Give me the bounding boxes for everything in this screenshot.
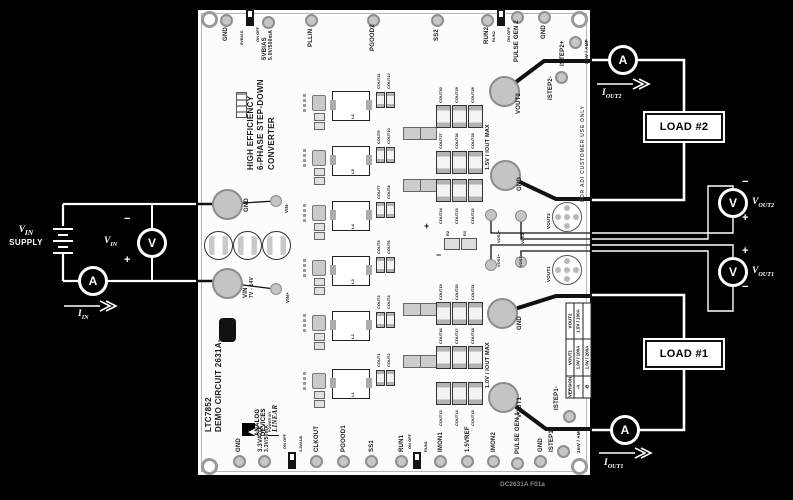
phase-cap bbox=[376, 370, 385, 386]
turret-gnd-label: GND bbox=[223, 27, 230, 41]
phase-vias bbox=[303, 372, 306, 375]
output-cap-label: COUT14 bbox=[455, 410, 460, 426]
inductor-label: L1 bbox=[351, 392, 356, 397]
mount-hole bbox=[571, 11, 588, 28]
turret-imon1 bbox=[434, 455, 447, 468]
5vbias-switch-label: 5VBIAS bbox=[240, 31, 245, 45]
vin-minus-sign: − bbox=[124, 213, 130, 225]
turret-pgood1-label: PGOOD1 bbox=[341, 425, 348, 452]
ammeter-letter: A bbox=[619, 53, 628, 67]
vout2-minus-sign: − bbox=[742, 176, 748, 188]
output-cap bbox=[468, 302, 483, 325]
phase-driver-ic bbox=[312, 373, 326, 389]
table-header: VOUT2 bbox=[566, 303, 574, 339]
vos2-minus-pad bbox=[515, 210, 527, 222]
istep2-minus-label: ISTEP2- bbox=[548, 76, 555, 100]
out2-gnd-label: GND bbox=[517, 177, 524, 191]
vos1-minus-label: VOS1- bbox=[519, 255, 524, 267]
turret-run2 bbox=[481, 14, 494, 27]
output-cap bbox=[452, 302, 467, 325]
phase-cap bbox=[376, 92, 385, 108]
turret-1v5ref-label: 1.5VREF bbox=[465, 426, 472, 452]
phase-vias bbox=[303, 259, 306, 262]
vin-minus-pad bbox=[270, 195, 282, 207]
load1-box: LOAD #1 bbox=[645, 340, 723, 368]
run1-switch bbox=[413, 452, 421, 469]
turret-pgood2-label: PGOOD2 bbox=[370, 24, 377, 51]
test-setup-figure: VIN SUPPLY V − + VIN A IIN A IOUT2 LOAD … bbox=[0, 0, 793, 500]
mount-hole bbox=[201, 11, 218, 28]
table-cell: 1.5V / 100A bbox=[574, 303, 582, 339]
inductor-label: L6 bbox=[351, 114, 356, 119]
vout2-jack-label: VOUT2 bbox=[546, 213, 551, 229]
output-cap-label: COUT23 bbox=[455, 208, 460, 224]
sense-plus-mark: + bbox=[424, 221, 429, 231]
phase-vias bbox=[303, 314, 306, 317]
run1-onoff-label: ON OFF bbox=[408, 434, 413, 449]
output-cap bbox=[468, 382, 483, 405]
output-cap-label: COUT25 bbox=[471, 133, 476, 149]
phase-cap-label: COUT8 bbox=[387, 185, 392, 199]
turret-istep1-plus bbox=[557, 445, 570, 458]
resistor-bar bbox=[403, 179, 437, 192]
vout1-plus-sign: + bbox=[742, 245, 748, 257]
input-bulk-cap bbox=[262, 231, 291, 260]
phase-cap-label: COUT11 bbox=[377, 73, 382, 89]
output-cap bbox=[468, 105, 483, 128]
5vbias-switch bbox=[246, 9, 254, 26]
phase-cap-label: COUT12 bbox=[387, 73, 392, 89]
phase-fet bbox=[314, 400, 325, 408]
turret-gnd2-bottom bbox=[534, 455, 547, 468]
sense-resistor bbox=[461, 238, 477, 250]
output-cap bbox=[436, 179, 451, 202]
phase-cap bbox=[376, 147, 385, 163]
vout2-signal-label: VOUT2 bbox=[752, 197, 774, 209]
turret-ss1 bbox=[365, 455, 378, 468]
run1-switch-label: RUN1 bbox=[424, 441, 429, 452]
phase-driver-ic bbox=[312, 150, 326, 166]
pulse-gen2-label: PULSE GEN 2 bbox=[514, 20, 521, 62]
phase-cap bbox=[386, 92, 395, 108]
output-cap-label: COUT29 bbox=[455, 87, 460, 103]
iout1-signal-label: IOUT1 bbox=[604, 458, 623, 470]
phase-cap-label: COUT3 bbox=[377, 295, 382, 309]
turret-5vbias bbox=[262, 16, 275, 29]
voltmeter-letter: V bbox=[729, 265, 737, 279]
inductor-label: L2 bbox=[351, 334, 356, 339]
phase-driver-ic bbox=[312, 260, 326, 276]
out1-gnd-label: GND bbox=[517, 316, 524, 330]
vin-plus-pad bbox=[270, 283, 282, 295]
phase-fet bbox=[314, 333, 325, 341]
figure-code: DC2631A F01a bbox=[500, 481, 545, 488]
gnd-input-label: GND bbox=[244, 198, 251, 212]
vin-signal-label: VIN bbox=[104, 236, 117, 248]
output-cap-label: COUT16 bbox=[439, 328, 444, 344]
output-cap bbox=[452, 151, 467, 174]
output-cap-label: COUT28 bbox=[471, 87, 476, 103]
vout1-jack-label: VOUT1 bbox=[546, 266, 551, 282]
output-cap bbox=[468, 346, 483, 369]
turret-istep2-plus bbox=[569, 36, 582, 49]
output-cap bbox=[468, 179, 483, 202]
istep2-plus-label: ISTEP2+ bbox=[560, 40, 567, 66]
output-cap-label: COUT27 bbox=[439, 133, 444, 149]
table-cell: -B bbox=[583, 376, 591, 398]
output-cap bbox=[452, 179, 467, 202]
output-cap-label: COUT20 bbox=[455, 284, 460, 300]
phase-cap bbox=[386, 202, 395, 218]
output-cap bbox=[436, 105, 451, 128]
table-cell bbox=[583, 303, 591, 339]
output-cap bbox=[452, 382, 467, 405]
phase-cap-label: COUT2 bbox=[387, 353, 392, 367]
board-title: HIGH EFFICIENCY6-PHASE STEP-DOWNCONVERTE… bbox=[246, 79, 277, 170]
phase-fet bbox=[314, 177, 325, 185]
sense-resistor-label: R2 bbox=[446, 231, 451, 236]
turret-istep2-minus bbox=[555, 71, 568, 84]
output-cap-label: COUT17 bbox=[455, 328, 460, 344]
phase-cap bbox=[376, 312, 385, 328]
phase-fet bbox=[314, 232, 325, 240]
phase-cap-label: COUT9 bbox=[377, 130, 382, 144]
phase-cap bbox=[386, 312, 395, 328]
iout1-ammeter: A bbox=[610, 415, 640, 445]
output-cap-label: COUT19 bbox=[439, 284, 444, 300]
turret-gnd2 bbox=[538, 11, 551, 24]
vin-supply-label: VIN SUPPLY bbox=[2, 224, 50, 248]
vout1-jack bbox=[552, 255, 582, 285]
output-cap bbox=[436, 302, 451, 325]
vout1-pad bbox=[488, 382, 519, 413]
vout2-pad-label: VOUT2 bbox=[516, 93, 523, 114]
phase-cap-label: COUT1 bbox=[377, 353, 382, 367]
output-cap-label: COUT21 bbox=[471, 284, 476, 300]
turret-pgood1 bbox=[337, 455, 350, 468]
out2-max-label: 1.5V / IOUT MAX bbox=[485, 124, 491, 170]
ic-chip bbox=[219, 318, 236, 342]
vout1-signal-label: VOUT1 bbox=[752, 266, 774, 278]
output-cap-label: COUT13 bbox=[439, 410, 444, 426]
output-cap bbox=[436, 346, 451, 369]
output-cap-label: COUT24 bbox=[439, 208, 444, 224]
output-cap bbox=[468, 151, 483, 174]
phase-fet bbox=[314, 287, 325, 295]
battery-plates bbox=[53, 229, 73, 253]
turret-gnd-bottom bbox=[233, 455, 246, 468]
3v3aux-onoff-label: ON OFF bbox=[283, 434, 288, 449]
phase-vias bbox=[303, 204, 306, 207]
turret-pllin-label: PLLIN bbox=[308, 29, 315, 47]
output-cap-label: COUT30 bbox=[439, 87, 444, 103]
turret-pllin bbox=[305, 14, 318, 27]
out1-max-label: 1.0V / IOUT MAX bbox=[485, 342, 491, 388]
turret-ss2 bbox=[431, 14, 444, 27]
phase-cap-label: COUT10 bbox=[387, 128, 392, 144]
vin-plus-label: VIN+ bbox=[285, 292, 290, 303]
phase-cap bbox=[386, 147, 395, 163]
turret-run2-label: RUN2 bbox=[484, 27, 491, 44]
turret-gnd-bottom-label: GND bbox=[236, 438, 243, 452]
output-cap bbox=[436, 151, 451, 174]
phase-fet bbox=[314, 278, 325, 286]
turret-3v3aux bbox=[258, 455, 271, 468]
turret-ss1-label: SS1 bbox=[369, 440, 376, 452]
vout2-jack bbox=[552, 202, 582, 232]
version-table: VERSION VOUT1 VOUT2 -A 1.0V / 100A 1.5V … bbox=[566, 304, 592, 399]
pulse-gen1-label: PULSE GEN 1 bbox=[515, 412, 522, 454]
wiring-diagram bbox=[0, 0, 793, 500]
vos1-plus-label: VOS1+ bbox=[497, 254, 502, 267]
table-cell: 1.0V / 100A bbox=[574, 339, 582, 376]
3v3aux-switch bbox=[288, 452, 296, 469]
turret-ss2-label: SS2 bbox=[434, 29, 441, 41]
turret-gnd2-label: GND bbox=[541, 25, 548, 39]
table-header: VOUT1 bbox=[566, 339, 574, 376]
inductor-label: L5 bbox=[351, 169, 356, 174]
istep1-minus-label: ISTEP1- bbox=[554, 386, 561, 410]
turret-istep1-minus bbox=[563, 410, 576, 423]
inductor-label: L4 bbox=[351, 224, 356, 229]
turret-pulse-gen1 bbox=[511, 457, 524, 470]
turret-imon1-label: IMON1 bbox=[438, 432, 445, 452]
run2-switch bbox=[497, 9, 505, 26]
output-cap-label: COUT22 bbox=[471, 208, 476, 224]
voltmeter-letter: V bbox=[729, 196, 737, 210]
phase-driver-ic bbox=[312, 95, 326, 111]
istep1-plus-label: ISTEP1+ bbox=[549, 426, 556, 452]
turret-3v3aux-label: 3.3VAUX3.3V/50mA bbox=[258, 425, 271, 452]
ammeter-letter: A bbox=[89, 274, 98, 288]
phase-driver-ic bbox=[312, 205, 326, 221]
output-cap bbox=[452, 346, 467, 369]
phase-vias bbox=[303, 149, 306, 152]
vin-voltmeter: V bbox=[137, 228, 167, 258]
run2-switch-label: RUN2 bbox=[492, 31, 497, 42]
resistor-bar bbox=[403, 127, 437, 140]
voltmeter-letter: V bbox=[148, 236, 156, 250]
turret-imon2-label: IMON2 bbox=[491, 432, 498, 452]
phase-vias bbox=[303, 94, 306, 97]
istep2-note-label: 2mV / AMP bbox=[584, 39, 589, 64]
turret-5vbias-label: 5VBIAS5.0V/500mA bbox=[262, 30, 275, 60]
table-cell: -A bbox=[574, 376, 582, 398]
iout2-ammeter: A bbox=[608, 45, 638, 75]
vout1-minus-sign: − bbox=[742, 281, 748, 293]
phase-fet bbox=[314, 391, 325, 399]
input-bulk-cap bbox=[233, 231, 262, 260]
phase-cap bbox=[386, 370, 395, 386]
output-cap-label: COUT18 bbox=[471, 328, 476, 344]
phase-fet bbox=[314, 342, 325, 350]
phase-fet bbox=[314, 113, 325, 121]
mount-hole bbox=[201, 458, 218, 475]
turret-run1-label: RUN1 bbox=[399, 435, 406, 452]
load2-box: LOAD #2 bbox=[645, 113, 723, 141]
turret-imon2 bbox=[487, 455, 500, 468]
edge-note: FOR ADI CUSTOMER USE ONLY bbox=[581, 105, 587, 202]
phase-fet bbox=[314, 122, 325, 130]
board-model: LTC7852DEMO CIRCUIT 2631A- bbox=[204, 339, 225, 432]
mount-hole bbox=[571, 458, 588, 475]
sense-minus-mark: − bbox=[436, 250, 441, 260]
phase-cap bbox=[376, 202, 385, 218]
turret-1v5ref bbox=[461, 455, 474, 468]
table-cell: 1.0V / 200A bbox=[583, 339, 591, 376]
output-cap-label: COUT15 bbox=[471, 410, 476, 426]
turret-run1 bbox=[395, 455, 408, 468]
vin-minus-label: VIN- bbox=[284, 203, 289, 213]
phase-fet bbox=[314, 223, 325, 231]
vout2-plus-sign: + bbox=[742, 212, 748, 224]
turret-clkout bbox=[310, 455, 323, 468]
out1-gnd-pad bbox=[487, 298, 518, 329]
phase-fet bbox=[314, 168, 325, 176]
output-cap bbox=[452, 105, 467, 128]
iout2-signal-label: IOUT2 bbox=[602, 88, 621, 100]
phase-driver-ic bbox=[312, 315, 326, 331]
input-bulk-cap bbox=[204, 231, 233, 260]
turret-clkout-label: CLKOUT bbox=[314, 426, 321, 452]
iin-ammeter: A bbox=[78, 266, 108, 296]
gnd-input-pad bbox=[212, 189, 243, 220]
vos2-plus-pad bbox=[485, 209, 497, 221]
vin-input-label: VIN7V - 14V bbox=[243, 277, 256, 298]
vin-input-pad bbox=[212, 268, 243, 299]
table-header: VERSION bbox=[566, 376, 574, 398]
sense-resistor bbox=[444, 238, 460, 250]
sense-resistor-label: R1 bbox=[463, 231, 468, 236]
phase-cap-label: COUT6 bbox=[387, 240, 392, 254]
vos2-plus-label: VOS2+ bbox=[497, 230, 502, 243]
run2-onoff-label: ON OFF bbox=[507, 27, 512, 42]
adi-triangle-icon bbox=[242, 423, 255, 436]
5vbias-onoff-label: ON OFF bbox=[256, 27, 261, 42]
turret-gnd2-bottom-label: GND bbox=[538, 438, 545, 452]
supply-line2: SUPPLY bbox=[9, 238, 43, 247]
phase-cap-label: COUT7 bbox=[377, 185, 382, 199]
vos2-minus-label: VOS2- bbox=[521, 232, 526, 244]
inductor-label: L3 bbox=[351, 279, 356, 284]
output-cap-label: COUT26 bbox=[455, 133, 460, 149]
phase-cap-label: COUT4 bbox=[387, 295, 392, 309]
phase-cap bbox=[376, 257, 385, 273]
istep1-note-label: 2mV / AMP bbox=[576, 428, 581, 453]
phase-cap-label: COUT5 bbox=[377, 240, 382, 254]
vin-plus-sign: + bbox=[124, 254, 130, 266]
ammeter-letter: A bbox=[621, 423, 630, 437]
output-cap bbox=[436, 382, 451, 405]
sense-lines bbox=[592, 186, 733, 311]
phase-cap bbox=[386, 257, 395, 273]
resistor-bar bbox=[403, 355, 437, 368]
3v3aux-switch-label: 3.3VAUX bbox=[299, 436, 304, 452]
iin-signal-label: IIN bbox=[78, 309, 89, 321]
resistor-bar bbox=[403, 303, 437, 316]
turret-gnd bbox=[220, 14, 233, 27]
